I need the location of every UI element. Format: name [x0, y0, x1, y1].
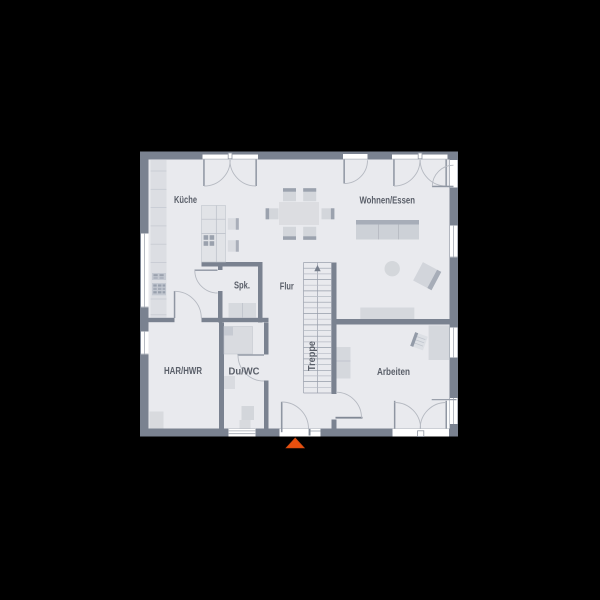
svg-text:Flur: Flur: [280, 282, 294, 293]
svg-text:Arbeiten: Arbeiten: [377, 367, 410, 378]
svg-text:Treppe: Treppe: [307, 341, 318, 371]
svg-text:Wohnen/Essen: Wohnen/Essen: [360, 195, 416, 206]
svg-text:Spk.: Spk.: [234, 281, 250, 292]
svg-text:Küche: Küche: [174, 195, 197, 206]
svg-text:HAR/HWR: HAR/HWR: [164, 366, 203, 377]
svg-text:Du/WC: Du/WC: [229, 367, 260, 378]
